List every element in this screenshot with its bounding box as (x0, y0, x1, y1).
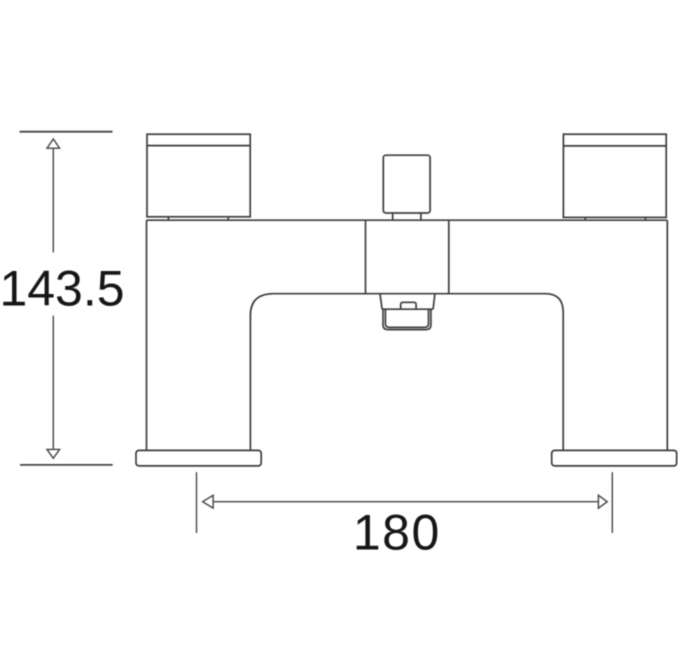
svg-text:143.5: 143.5 (0, 261, 125, 317)
svg-text:180: 180 (353, 505, 441, 561)
